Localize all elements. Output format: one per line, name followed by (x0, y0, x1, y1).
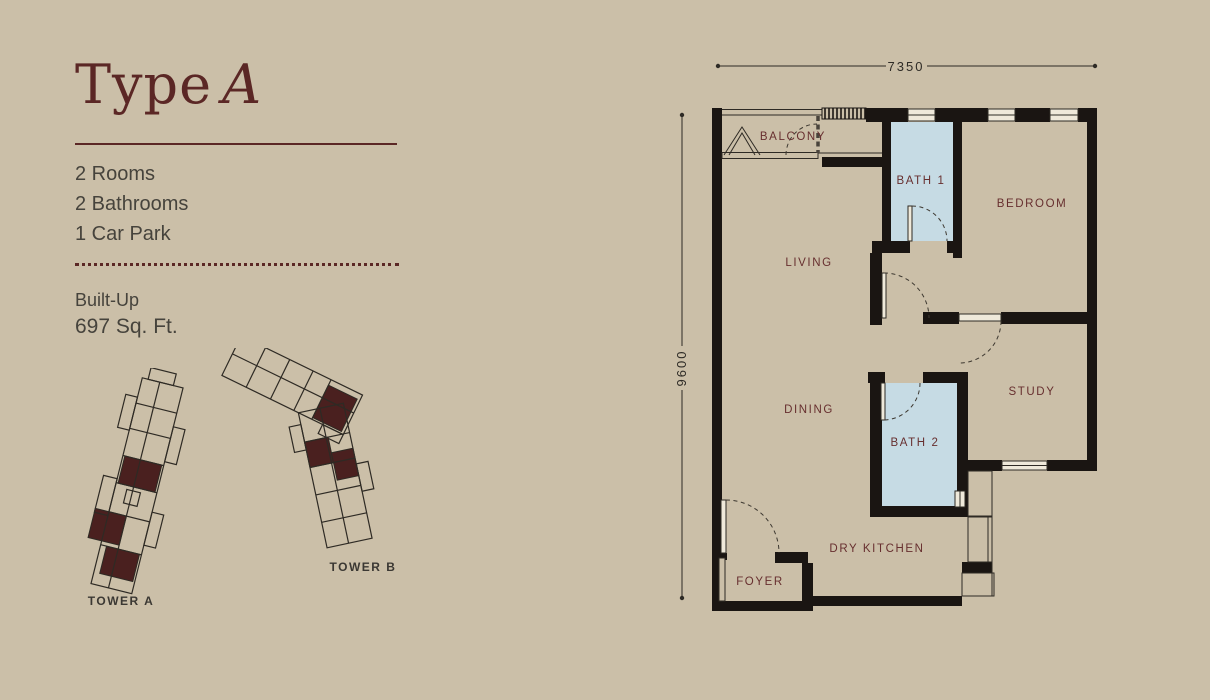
spec-rooms: 2 Rooms (75, 159, 188, 189)
tower-a-keyplan (60, 368, 210, 598)
tower-b-keyplan (205, 348, 405, 563)
title-underline (75, 143, 397, 145)
built-up-label: Built-Up (75, 290, 139, 311)
tower-a-label: TOWER A (61, 594, 181, 608)
room-label-dining: DINING (784, 404, 834, 416)
tower-b-highlight-unit (331, 448, 358, 480)
dim-width-label: 7350 (888, 59, 925, 74)
dim-height-label: 9600 (674, 350, 689, 387)
floor-plan: 7350 9600 (660, 30, 1210, 690)
room-label-balcony: BALCONY (760, 131, 826, 143)
vent-grille (822, 108, 866, 119)
tower-b-label: TOWER B (303, 560, 423, 574)
dotted-divider (75, 263, 399, 266)
balcony-rail (722, 153, 818, 159)
entry-door-leaf (721, 500, 726, 553)
study-door-arc (959, 321, 1001, 363)
tower-a-highlight-unit (100, 546, 140, 581)
kitchen-fixture (962, 573, 994, 596)
page: { "panel": { "title": { "regular": "Type… (0, 0, 1210, 700)
spec-carpark: 1 Car Park (75, 219, 188, 249)
bedroom-door-leaf (882, 273, 886, 318)
page-title-italic: A (222, 53, 262, 116)
page-title-regular: Type (75, 53, 212, 116)
room-label-bedroom: BEDROOM (997, 198, 1068, 210)
page-title: TypeA (75, 58, 262, 112)
room-label-foyer: FOYER (736, 576, 784, 588)
spec-list: 2 Rooms 2 Bathrooms 1 Car Park (75, 159, 188, 249)
study-door-leaf (959, 314, 1001, 321)
tower-b-upper-arm (218, 348, 367, 444)
drying-rack-icon (724, 127, 760, 155)
room-label-living: LIVING (785, 257, 832, 269)
spec-bathrooms: 2 Bathrooms (75, 189, 188, 219)
dimension-width: 7350 (716, 59, 1097, 74)
bath1-door-leaf (908, 206, 912, 241)
room-label-dry-kitchen: DRY KITCHEN (829, 543, 924, 555)
foyer-low-wall (719, 558, 725, 601)
built-up-value: 697 Sq. Ft. (75, 315, 178, 339)
room-label-bath1: BATH 1 (896, 175, 945, 187)
room-label-bath2: BATH 2 (890, 437, 939, 449)
service-ledge (968, 471, 992, 516)
dimension-height: 9600 (674, 113, 689, 600)
bath2-door-leaf (881, 383, 885, 420)
bedroom-door-arc (884, 273, 929, 318)
tower-a-building (77, 368, 197, 597)
drying-rack-icon (729, 133, 755, 155)
room-label-study: STUDY (1009, 386, 1056, 398)
entry-door-arc (726, 500, 779, 553)
